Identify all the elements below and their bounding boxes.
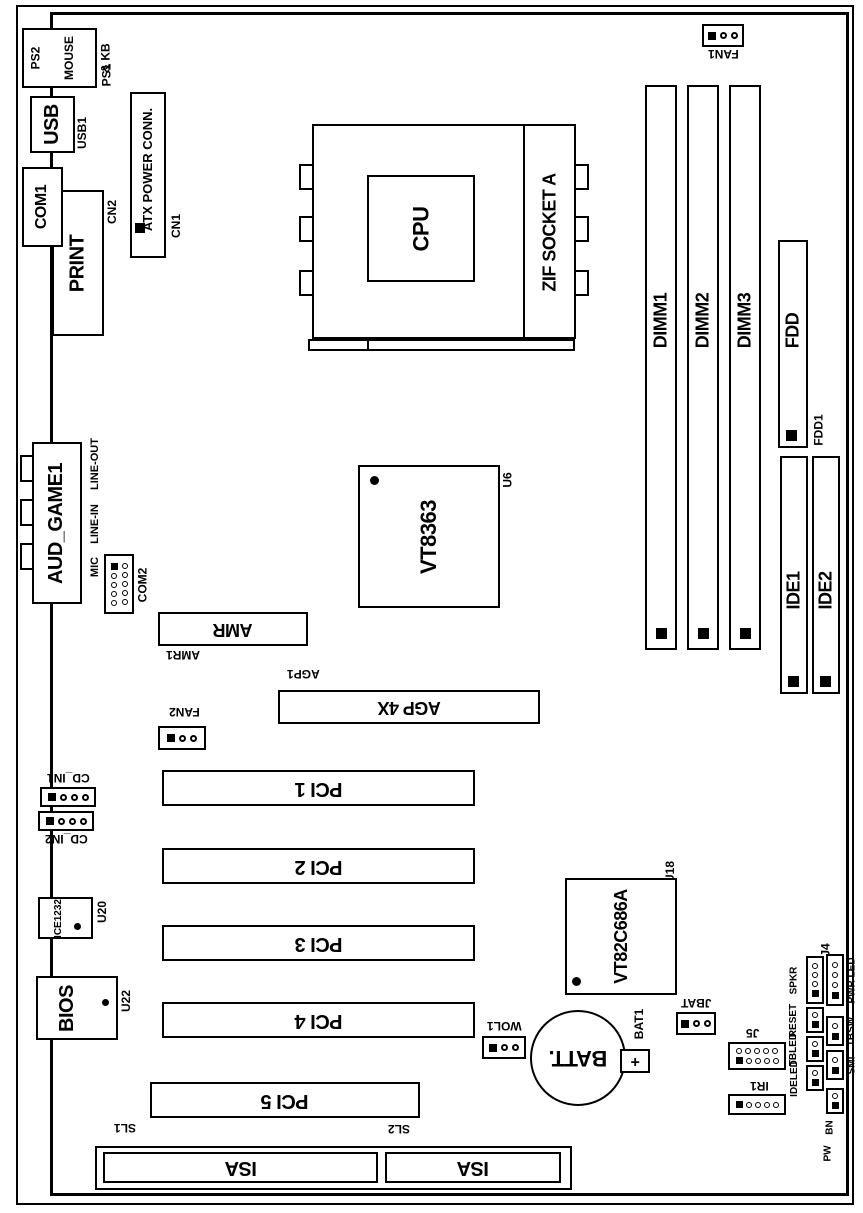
- socket-lever-bar: [308, 339, 575, 351]
- pin-circle: [693, 1020, 700, 1027]
- pin-circle: [190, 735, 197, 742]
- pin-circle: [832, 1023, 838, 1029]
- pci3-slot: PCI 3: [162, 925, 475, 961]
- pwr-led-label: PWR LED: [844, 948, 860, 1012]
- pin-circle: [512, 1044, 519, 1051]
- pin-circle: [111, 600, 117, 606]
- bn-label: BN: [822, 1114, 838, 1140]
- ice1232-label: ICE1232: [38, 897, 78, 939]
- pin1-square: [832, 1033, 839, 1040]
- pin-circle: [58, 818, 65, 825]
- pin-circle: [812, 1070, 818, 1076]
- isa-slot-1: ISA: [103, 1152, 378, 1183]
- vt8363-chip: VT8363: [358, 465, 500, 608]
- tbsw-label: TBSW: [844, 1012, 860, 1050]
- pin-circle: [179, 735, 186, 742]
- amr-slot: AMR: [158, 612, 308, 646]
- pin-circle: [755, 1102, 761, 1108]
- u6-ref-label: U6: [500, 462, 516, 498]
- pin1-square: [812, 1021, 819, 1028]
- pin-circle: [69, 818, 76, 825]
- pin-circle: [764, 1102, 770, 1108]
- j5-header: [728, 1042, 786, 1070]
- reset-header: [806, 1007, 824, 1033]
- bat1-ref-label: BAT1: [630, 1000, 648, 1048]
- battery-plus-terminal: +: [620, 1049, 650, 1073]
- pci2-slot: PCI 2: [162, 848, 475, 884]
- pin1-square: [812, 1079, 819, 1086]
- pci5-slot: PCI 5: [150, 1082, 420, 1118]
- bn-header: [826, 1088, 844, 1114]
- line-out-label: LINE-OUT: [86, 438, 104, 490]
- ir1-label: IR1: [742, 1078, 776, 1093]
- cn1-ref-label: CN1: [168, 205, 184, 247]
- pwr-led-header: [826, 954, 844, 1006]
- pin1-square: [812, 990, 819, 997]
- pin-circle: [832, 1057, 838, 1063]
- motherboard-layout-diagram: PS2 MOUSE & KB PS1 USB USB1 PRINT COM1 C…: [0, 0, 863, 1213]
- ps2-line2: MOUSE: [47, 30, 91, 86]
- pin1-square: [111, 563, 118, 570]
- cd-in2-label: CD_IN2: [38, 831, 94, 847]
- ideled-header: [806, 1065, 824, 1091]
- pin1-square: [681, 1020, 689, 1028]
- pci4-slot: PCI 4: [162, 1002, 475, 1038]
- pin-circle: [832, 962, 838, 968]
- ide2-label: IDE2: [812, 490, 840, 690]
- pin-circle: [832, 972, 838, 978]
- mic-label: MIC: [86, 552, 104, 582]
- ir1-header: [728, 1094, 786, 1115]
- usb1-ref-label: USB1: [74, 110, 90, 156]
- fan1-label: FAN1: [700, 46, 746, 61]
- pin-circle: [812, 981, 818, 987]
- pin-circle: [122, 599, 128, 605]
- usb-port: USB: [30, 96, 75, 153]
- zif-socket-label: ZIF SOCKET A: [528, 130, 572, 335]
- pw-label: PW: [820, 1140, 836, 1166]
- isa-slot-2: ISA: [385, 1152, 561, 1183]
- wol1-connector: [482, 1036, 526, 1059]
- pin-circle: [731, 32, 738, 39]
- pin-circle: [812, 1012, 818, 1018]
- jbat-connector: [676, 1012, 716, 1035]
- chip-pin1-dot: [572, 977, 581, 986]
- pin-circle: [122, 581, 128, 587]
- tbsw-header: [826, 1016, 844, 1046]
- pin1-square: [708, 32, 716, 40]
- pin-circle: [111, 573, 117, 579]
- pin-circle: [812, 1041, 818, 1047]
- j5-label: J5: [740, 1025, 766, 1040]
- pin-circle: [754, 1048, 760, 1054]
- pin-circle: [832, 982, 838, 988]
- u22-ref-label: U22: [118, 984, 134, 1018]
- pin-circle: [501, 1044, 508, 1051]
- socket-divider-line: [523, 126, 525, 337]
- pin-circle: [122, 590, 128, 596]
- pin-circle: [755, 1058, 761, 1064]
- pin-circle: [122, 563, 128, 569]
- pci1-slot: PCI 1: [162, 770, 475, 806]
- pin-circle: [80, 818, 87, 825]
- cpu-die: CPU: [367, 175, 475, 282]
- pin-circle: [773, 1102, 779, 1108]
- dimm1-label: DIMM1: [645, 85, 677, 555]
- pin1-square: [812, 1050, 819, 1057]
- pin-circle: [122, 572, 128, 578]
- bios-label: BIOS: [36, 976, 98, 1040]
- pin1-square: [46, 817, 54, 825]
- pin-circle: [746, 1102, 752, 1108]
- socket-tooth: [574, 216, 589, 242]
- sl1-ref-label: SL1: [110, 1120, 140, 1135]
- agp-slot: AGP 4X: [278, 690, 540, 724]
- pin-circle: [764, 1058, 770, 1064]
- chip-pin1-dot: [102, 999, 109, 1006]
- pin1-square: [832, 992, 839, 999]
- spkr-header: [806, 956, 824, 1004]
- tbled-header: [806, 1036, 824, 1062]
- com2-label: COM2: [134, 560, 150, 610]
- pin1-square: [736, 1101, 743, 1108]
- socket-tooth: [574, 164, 589, 190]
- chip-pin1-dot: [74, 923, 81, 930]
- pin-circle: [812, 963, 818, 969]
- fdd-label: FDD: [778, 240, 808, 420]
- aud-game1-port: AUD_GAME1: [32, 442, 82, 604]
- pin1-square: [167, 734, 175, 742]
- fdd1-ref-label: FDD1: [811, 408, 827, 452]
- wol1-label: WOL1: [482, 1018, 526, 1033]
- socket-lever-divider: [367, 339, 369, 351]
- dimm3-pin1-square: [740, 628, 751, 639]
- pin1-square: [832, 1067, 839, 1074]
- atx-power-connector: ATX POWER CONN.: [130, 92, 166, 258]
- spkr-label: SPKR: [786, 958, 802, 1002]
- pin-circle: [812, 972, 818, 978]
- ide1-pin1-square: [788, 676, 799, 687]
- com1-port: COM1: [22, 167, 63, 247]
- com2-header: [104, 554, 134, 614]
- sl2-ref-label: SL2: [384, 1121, 414, 1136]
- pin1-square: [489, 1044, 497, 1052]
- pin-circle: [763, 1048, 769, 1054]
- cd-in1-connector: [40, 787, 96, 807]
- line-in-label: LINE-IN: [86, 500, 104, 548]
- fan2-connector: [158, 726, 206, 750]
- fdd-pin1-square: [786, 430, 797, 441]
- dimm2-label: DIMM2: [687, 85, 719, 555]
- dimm3-label: DIMM3: [729, 85, 761, 555]
- pin-circle: [704, 1020, 711, 1027]
- pin-circle: [832, 1093, 838, 1099]
- ide1-label: IDE1: [780, 490, 808, 690]
- pin-circle: [736, 1048, 742, 1054]
- pin1-square: [48, 793, 56, 801]
- cn2-ref-label: CN2: [104, 192, 120, 232]
- u20-ref-label: U20: [94, 896, 110, 928]
- chip-pin1-dot: [370, 476, 379, 485]
- jbat-label: JBAT: [676, 995, 716, 1010]
- pin-circle: [60, 794, 67, 801]
- cd-in1-label: CD_IN1: [40, 770, 96, 786]
- ps2-line1: PS2: [24, 30, 47, 86]
- pin-circle: [772, 1048, 778, 1054]
- pin-circle: [111, 582, 117, 588]
- smi-label: SMI: [844, 1048, 860, 1082]
- cd-in2-connector: [38, 811, 94, 831]
- dimm1-pin1-square: [656, 628, 667, 639]
- fan1-connector: [702, 24, 744, 47]
- ps1-ref-label: PS1: [98, 56, 114, 94]
- pin-circle: [720, 32, 727, 39]
- atx-pin1-square: [135, 223, 145, 233]
- pin-circle: [746, 1058, 752, 1064]
- fan2-label: FAN2: [160, 704, 208, 719]
- pin1-square: [832, 1102, 839, 1109]
- pin-circle: [773, 1058, 779, 1064]
- ps2-port: PS2 MOUSE & KB: [22, 28, 97, 88]
- dimm2-pin1-square: [698, 628, 709, 639]
- ide2-pin1-square: [820, 676, 831, 687]
- socket-tooth: [574, 270, 589, 296]
- smi-header: [826, 1050, 844, 1080]
- pin-circle: [111, 591, 117, 597]
- pin1-square: [736, 1057, 743, 1064]
- pin-circle: [71, 794, 78, 801]
- vt82c686a-chip: VT82C686A: [565, 878, 677, 995]
- battery: BATT.: [530, 1010, 626, 1106]
- ideled-label: IDELED: [786, 1057, 802, 1099]
- amr1-ref-label: AMR1: [158, 647, 208, 662]
- agp1-ref-label: AGP1: [280, 666, 326, 681]
- pin-circle: [82, 794, 89, 801]
- pin-circle: [745, 1048, 751, 1054]
